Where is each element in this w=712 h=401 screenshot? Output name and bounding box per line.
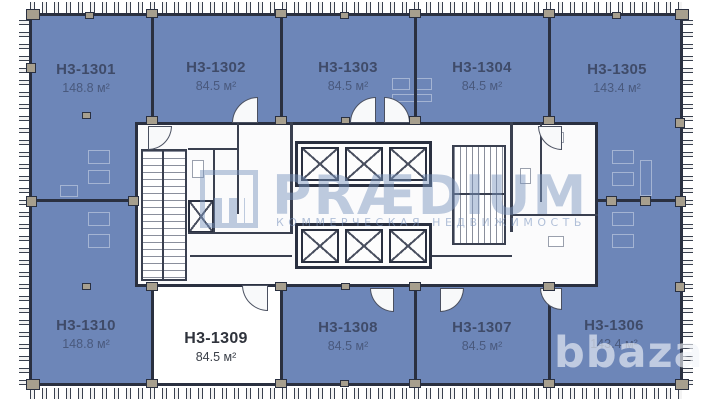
facade-ticks-top <box>30 2 682 13</box>
unit-id: H3-1310 <box>24 318 148 335</box>
column-marker <box>82 283 91 290</box>
column-marker <box>675 196 686 207</box>
column-marker <box>675 379 689 390</box>
elevator-cell <box>345 229 383 263</box>
unit-area: 143.4 м² <box>555 81 679 95</box>
elevator-cell <box>301 229 339 263</box>
column-marker <box>409 379 421 388</box>
brand-tagline-watermark: КОММЕРЧЕСКАЯ НЕДВИЖИМОСТЬ <box>276 216 586 229</box>
wall-divider <box>548 14 551 122</box>
corridor-wall <box>432 255 512 257</box>
unit-id: H3-1303 <box>286 60 410 77</box>
column-marker <box>26 196 37 207</box>
unit-label-h3-1305: H3-1305 143.4 м² <box>555 62 679 95</box>
unit-area: 84.5 м² <box>420 339 544 353</box>
column-marker <box>409 9 421 18</box>
floor-plan: H3-1301 148.8 м² H3-1302 84.5 м² H3-1303… <box>0 0 712 401</box>
unit-area: 84.5 м² <box>286 339 410 353</box>
unit-id: H3-1308 <box>286 320 410 337</box>
unit-area: 148.8 м² <box>24 337 148 351</box>
unit-area: 84.5 м² <box>154 79 278 93</box>
column-marker <box>341 283 350 290</box>
column-marker <box>409 116 421 125</box>
unit-id: H3-1301 <box>24 62 148 79</box>
wall-divider <box>280 14 283 122</box>
unit-label-h3-1308: H3-1308 84.5 м² <box>286 320 410 353</box>
stairwell-left-divider <box>162 149 164 281</box>
column-marker <box>82 112 91 119</box>
ghost-furniture <box>88 234 110 248</box>
unit-label-h3-1303: H3-1303 84.5 м² <box>286 60 410 93</box>
column-marker <box>640 196 651 206</box>
wall-divider <box>414 14 417 122</box>
column-marker <box>409 282 421 291</box>
ghost-furniture <box>612 172 634 186</box>
column-marker <box>675 118 685 128</box>
unit-label-h3-1301: H3-1301 148.8 м² <box>24 62 148 95</box>
elevator-cell <box>389 229 427 263</box>
unit-label-h3-1307: H3-1307 84.5 м² <box>420 320 544 353</box>
unit-id: H3-1302 <box>154 60 278 77</box>
column-marker <box>543 379 555 388</box>
corridor-wall <box>190 255 292 257</box>
column-marker <box>675 9 689 20</box>
column-marker <box>543 282 555 291</box>
ghost-furniture <box>60 185 78 197</box>
wall-exterior-bottom <box>30 383 682 386</box>
ghost-furniture <box>640 160 652 196</box>
wall-divider-left-wing <box>30 199 135 202</box>
ghost-furniture <box>612 150 634 164</box>
unit-region-left-wing <box>32 122 135 287</box>
column-marker <box>275 282 287 291</box>
stairwell-left <box>141 149 187 281</box>
unit-area: 84.5 м² <box>154 350 278 364</box>
site-watermark: bbaza <box>554 328 704 378</box>
ghost-furniture <box>612 212 634 226</box>
facade-ticks-bottom <box>30 388 682 399</box>
column-marker <box>146 379 158 388</box>
unit-id: H3-1304 <box>420 60 544 77</box>
ghost-furniture <box>88 212 110 226</box>
column-marker <box>146 116 158 125</box>
column-marker <box>146 282 158 291</box>
column-marker <box>543 9 555 18</box>
unit-area: 84.5 м² <box>420 79 544 93</box>
unit-area: 148.8 м² <box>24 81 148 95</box>
core-room-wall <box>188 148 238 150</box>
core-room-wall <box>188 232 292 234</box>
column-marker <box>275 9 287 18</box>
column-marker <box>85 12 94 19</box>
ghost-furniture <box>88 150 110 164</box>
wc-fixture <box>548 236 564 247</box>
ghost-furniture <box>88 170 110 184</box>
brand-logo-mark-icon <box>214 198 245 223</box>
column-marker <box>340 380 349 387</box>
unit-label-h3-1302: H3-1302 84.5 м² <box>154 60 278 93</box>
column-marker <box>26 9 40 20</box>
column-marker <box>340 12 349 19</box>
wall-divider <box>414 287 417 385</box>
column-marker <box>275 116 287 125</box>
column-marker <box>146 9 158 18</box>
column-marker <box>341 117 350 124</box>
unit-label-h3-1304: H3-1304 84.5 м² <box>420 60 544 93</box>
wall-exterior-top <box>30 13 682 16</box>
column-marker <box>612 12 621 19</box>
unit-label-h3-1309: H3-1309 84.5 м² <box>154 330 278 364</box>
unit-label-h3-1310: H3-1310 148.8 м² <box>24 318 148 351</box>
column-marker <box>26 379 40 390</box>
column-marker <box>675 282 685 292</box>
column-marker <box>275 379 287 388</box>
column-marker <box>543 116 555 125</box>
column-marker <box>128 196 139 206</box>
unit-area: 84.5 м² <box>286 79 410 93</box>
wall-divider <box>280 287 283 385</box>
door-arc <box>242 285 268 311</box>
unit-id: H3-1309 <box>154 330 278 348</box>
column-marker <box>606 196 617 206</box>
ghost-furniture <box>612 234 634 248</box>
unit-id: H3-1307 <box>420 320 544 337</box>
unit-id: H3-1305 <box>555 62 679 79</box>
